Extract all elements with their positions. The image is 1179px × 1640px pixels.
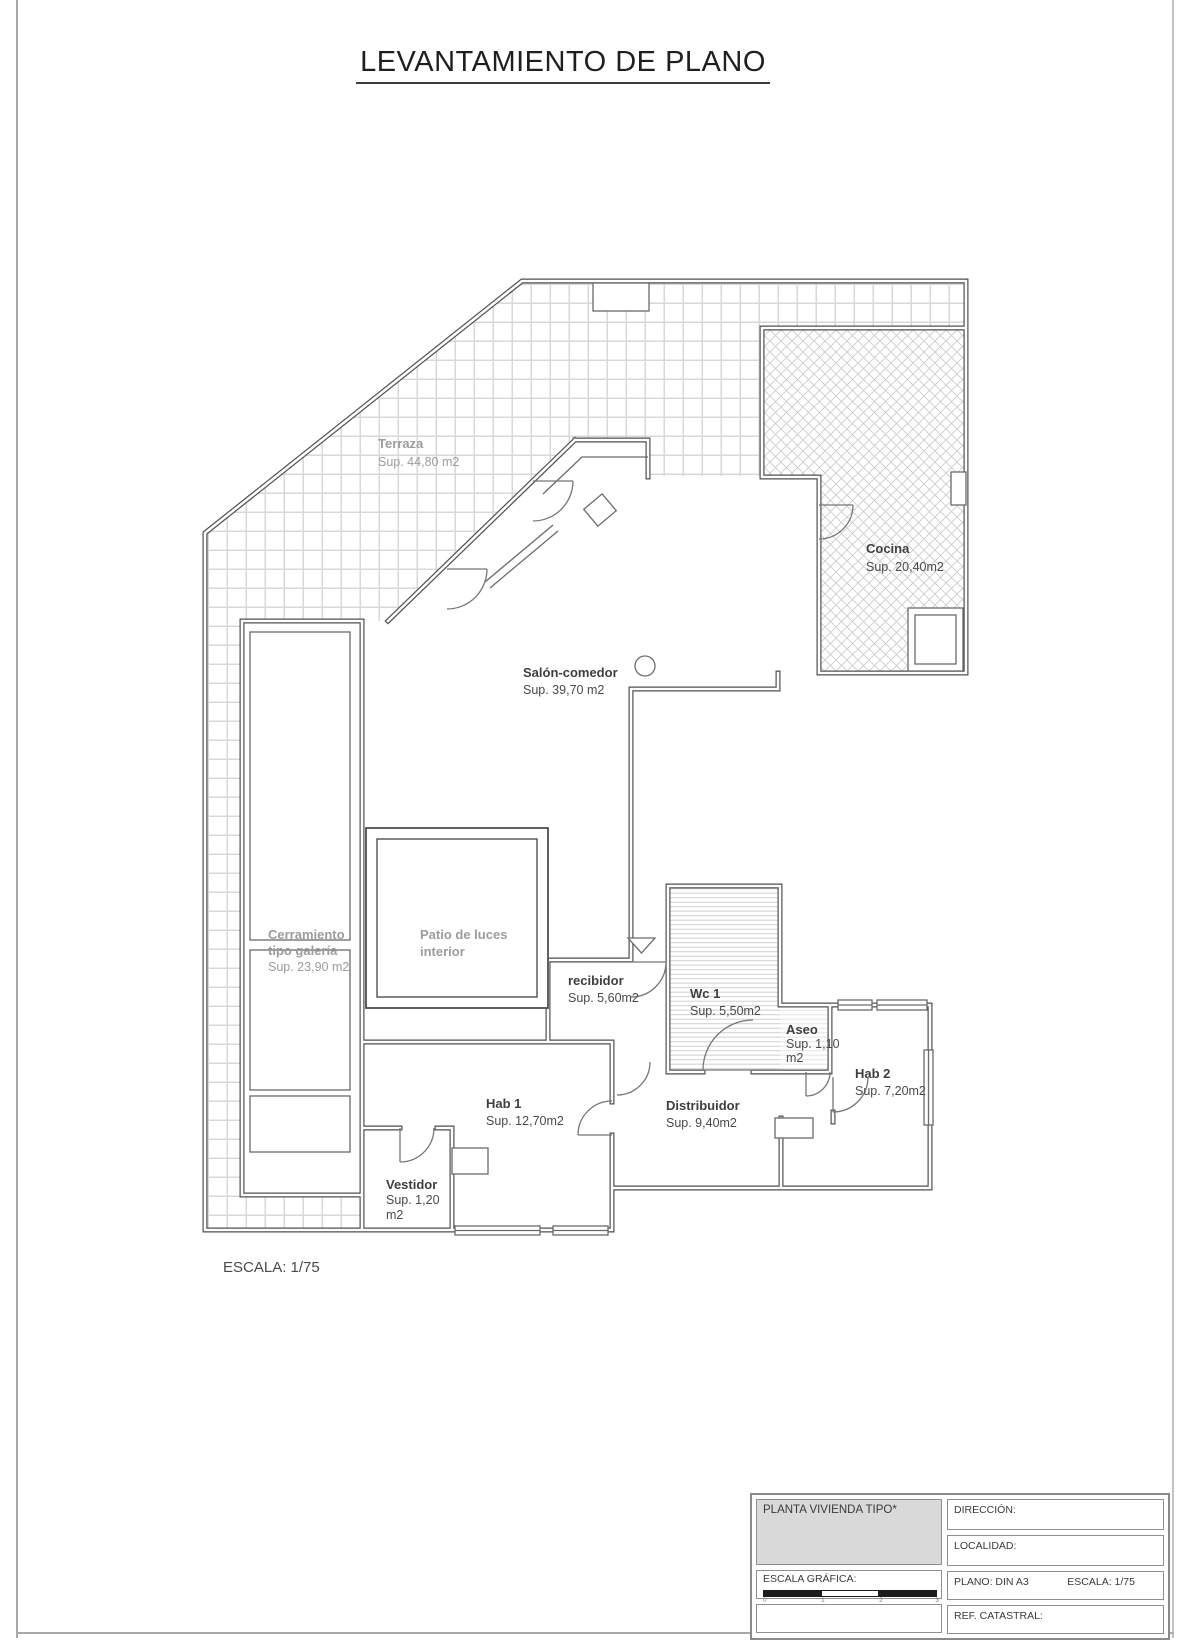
galeria-glazing xyxy=(250,632,350,1152)
hab1-area: Sup. 12,70m2 xyxy=(486,1114,564,1128)
distribuidor-area: Sup. 9,40m2 xyxy=(666,1116,737,1130)
direccion-label: DIRECCIÓN: xyxy=(954,1504,1016,1516)
plan-page: { "page": { "title": "LEVANTAMIENTO DE P… xyxy=(0,0,1179,1638)
wc1-label: Wc 1 xyxy=(690,986,720,1001)
vestidor-cabinet xyxy=(452,1148,488,1174)
scale-bar xyxy=(763,1590,937,1597)
wc1-region xyxy=(668,886,780,1072)
localidad-cell: LOCALIDAD: xyxy=(947,1535,1164,1566)
patio-label-2: interior xyxy=(420,944,465,959)
scale-tick: 1 xyxy=(821,1597,825,1604)
vestidor-area: Sup. 1,20 xyxy=(386,1193,440,1207)
title-block-right-column: DIRECCIÓN: LOCALIDAD: PLANO: DIN A3 ESCA… xyxy=(947,1499,1164,1634)
cerramiento-label: Cerramiento xyxy=(268,927,345,942)
scale-tick: 3 xyxy=(935,1597,939,1604)
scale-bar-ticks: 0 1 2 3 xyxy=(763,1597,939,1605)
hab2-area: Sup. 7,20m2 xyxy=(855,1084,926,1098)
vestidor-area-2: m2 xyxy=(386,1208,403,1222)
salon-comedor-label: Salón-comedor xyxy=(523,665,618,680)
patio-label: Patio de luces xyxy=(420,927,507,942)
graphic-scale-label: ESCALA GRÁFICA: xyxy=(763,1573,856,1585)
escala-label: ESCALA: 1/75 xyxy=(1067,1576,1135,1595)
aseo-label: Aseo xyxy=(786,1022,818,1037)
wc1-area: Sup. 5,50m2 xyxy=(690,1004,761,1018)
scale-note: ESCALA: 1/75 xyxy=(223,1259,320,1276)
distribuidor-label: Distribuidor xyxy=(666,1098,740,1113)
scale-tick: 0 xyxy=(763,1597,767,1604)
plano-escala-cell: PLANO: DIN A3 ESCALA: 1/75 xyxy=(947,1571,1164,1600)
salon-comedor-area: Sup. 39,70 m2 xyxy=(523,683,604,697)
column-mark xyxy=(635,656,655,676)
vestidor-label: Vestidor xyxy=(386,1177,437,1192)
plano-label: PLANO: DIN A3 xyxy=(954,1576,1029,1595)
cocina-label: Cocina xyxy=(866,541,910,556)
plan-name: PLANTA VIVIENDA TIPO* xyxy=(763,1504,897,1516)
plan-name-cell: PLANTA VIVIENDA TIPO* xyxy=(756,1499,942,1565)
terraza-area: Sup. 44,80 m2 xyxy=(378,455,459,469)
patio-lightwell xyxy=(366,828,548,1008)
aseo-area: Sup. 1,10 xyxy=(786,1037,840,1051)
ref-catastral-label: REF. CATASTRAL: xyxy=(954,1610,1043,1622)
recibidor-area: Sup. 5,60m2 xyxy=(568,991,639,1005)
kitchen-wall-unit xyxy=(951,472,966,505)
title-block-left-column: PLANTA VIVIENDA TIPO* ESCALA GRÁFICA: 0 … xyxy=(756,1499,942,1634)
title-block: PLANTA VIVIENDA TIPO* ESCALA GRÁFICA: 0 … xyxy=(750,1493,1170,1640)
empty-cell xyxy=(756,1604,942,1633)
hab2-label: Hab 2 xyxy=(855,1066,890,1081)
cocina-area: Sup. 20,40m2 xyxy=(866,560,944,574)
scale-bar-segment xyxy=(879,1591,936,1596)
wall-column xyxy=(775,1118,813,1138)
cerramiento-area: Sup. 23,90 m2 xyxy=(268,960,349,974)
floor-plan-drawing: Terraza Sup. 44,80 m2 Cocina Sup. 20,40m… xyxy=(0,0,1179,1638)
scale-bar-segment xyxy=(821,1591,880,1596)
scale-tick: 2 xyxy=(879,1597,883,1604)
aseo-area-2: m2 xyxy=(786,1051,803,1065)
kitchen-appliance-inner xyxy=(915,615,956,664)
graphic-scale-cell: ESCALA GRÁFICA: 0 1 2 3 xyxy=(756,1570,942,1599)
direccion-cell: DIRECCIÓN: xyxy=(947,1499,1164,1530)
scale-bar-segment xyxy=(764,1591,821,1596)
recibidor-label: recibidor xyxy=(568,973,624,988)
hab1-label: Hab 1 xyxy=(486,1096,521,1111)
ref-catastral-cell: REF. CATASTRAL: xyxy=(947,1605,1164,1634)
cerramiento-label-2: tipo galería xyxy=(268,943,338,958)
localidad-label: LOCALIDAD: xyxy=(954,1540,1016,1552)
terraza-label: Terraza xyxy=(378,436,424,451)
